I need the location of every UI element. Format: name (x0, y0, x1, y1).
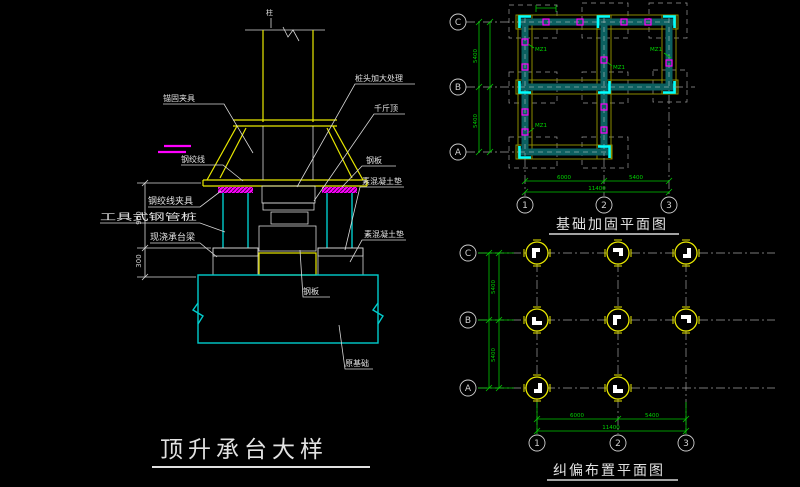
jacking-point (524, 375, 550, 401)
clamp-plate-left (218, 187, 253, 193)
break-symbol (283, 27, 299, 41)
detail-annotations: 锚固夹具 钢绞线 桩头加大处理 千斤顶 钢板 素混凝土垫 素混凝土垫 钢板 原基… (100, 73, 415, 369)
grid-col-2: 2 (615, 439, 621, 449)
jacking-point (605, 307, 631, 333)
steel-pipe-piles (223, 193, 352, 248)
grid-col-3: 3 (666, 201, 672, 211)
foundation-plan: MZ1 MZ1 MZ1 MZ1 C B A 5400 (450, 3, 695, 234)
grid-col-1: 1 (534, 439, 540, 449)
dim-bottom-total: 11400 (602, 425, 620, 431)
label-strand: 钢绞线 (181, 154, 205, 164)
label-strand-clamp: 钢绞线夹具 (148, 195, 193, 207)
grid-col-3: 3 (683, 439, 689, 449)
cad-drawing: 柱 (0, 0, 800, 487)
original-foundation (193, 275, 383, 343)
label-steel-plate-right: 钢板 (366, 155, 382, 165)
plan-bottom-bottom-dims: 6000 5400 11400 1 2 3 (529, 402, 694, 451)
jacking-point (524, 307, 550, 333)
jacking-point (673, 240, 699, 266)
dim-300: 300 (135, 254, 143, 267)
spreader-cap (203, 120, 367, 186)
plan-bottom-title-block: 纠偏布置平面图 (547, 463, 678, 480)
jacking-point (605, 240, 631, 266)
strand-symbol (158, 146, 191, 152)
grid-row-a: A (465, 384, 472, 394)
column-top: 柱 (245, 8, 325, 122)
grid-row-c: C (465, 249, 471, 259)
detail-dimension: 900 300 (135, 180, 211, 280)
label-column: 柱 (266, 8, 273, 17)
dim-left-1: 5400 (473, 49, 479, 63)
dim-left-2: 5400 (491, 348, 497, 362)
new-concrete-pad (259, 253, 316, 275)
cad-viewport: 柱 (0, 0, 800, 487)
dim-left-2: 5400 (473, 114, 479, 128)
detail-title: 顶升承台大样 (160, 437, 328, 463)
pile-mark: MZ1 (613, 65, 625, 71)
grid-row-b: B (465, 316, 471, 326)
plan-top-title-block: 基础加固平面图 (549, 216, 679, 234)
clamp-plate-right (322, 187, 357, 193)
jacking-point (605, 375, 631, 401)
label-original-foundation: 原基础 (345, 358, 369, 368)
jacking-points (524, 240, 699, 401)
pile-mark: MZ1 (535, 47, 547, 53)
grid-col-2: 2 (601, 201, 607, 211)
dim-bottom-2: 5400 (645, 413, 659, 419)
dim-left-1: 5400 (491, 280, 497, 294)
dim-bottom-total: 11400 (588, 186, 606, 192)
label-steel-plate-bottom: 钢板 (303, 286, 319, 296)
pile-mark: MZ1 (535, 123, 547, 129)
pile-mark: MZ1 (650, 47, 662, 53)
plan-bottom-title: 纠偏布置平面图 (553, 463, 665, 479)
label-tool-pipe-pile: 工具式钢管桩 (100, 211, 197, 223)
detail-title-block: 顶升承台大样 (152, 437, 370, 467)
jacking-point (673, 307, 699, 333)
jack-stack (259, 186, 316, 275)
label-anchor-clamp: 锚固夹具 (163, 93, 195, 103)
dim-bottom-1: 6000 (557, 175, 571, 181)
grid-row-c: C (455, 18, 461, 28)
label-pad-upper: 素混凝土垫 (362, 176, 402, 186)
label-pad-lower: 素混凝土垫 (364, 229, 404, 239)
dim-bottom-1: 6000 (570, 413, 584, 419)
label-pile-head: 桩头加大处理 (355, 73, 403, 83)
label-jack: 千斤顶 (374, 103, 398, 113)
grid-row-a: A (455, 148, 462, 158)
label-cast-beam: 现浇承台梁 (150, 231, 195, 243)
cap-beam-right (318, 248, 363, 275)
grid-row-b: B (455, 83, 461, 93)
cap-beam-left (213, 248, 258, 275)
rectification-plan: 5400 5400 C B A (460, 240, 775, 480)
jacking-cap-detail: 柱 (100, 8, 415, 467)
grid-col-1: 1 (522, 201, 528, 211)
plan-bottom-left-dims: 5400 5400 (478, 250, 514, 391)
jacking-point (524, 240, 550, 266)
plan-bottom-row-grid: C B A (460, 245, 476, 396)
plan-bottom-grid-lines (478, 246, 775, 434)
plan-top-title: 基础加固平面图 (556, 216, 668, 233)
dim-bottom-2: 5400 (629, 175, 643, 181)
